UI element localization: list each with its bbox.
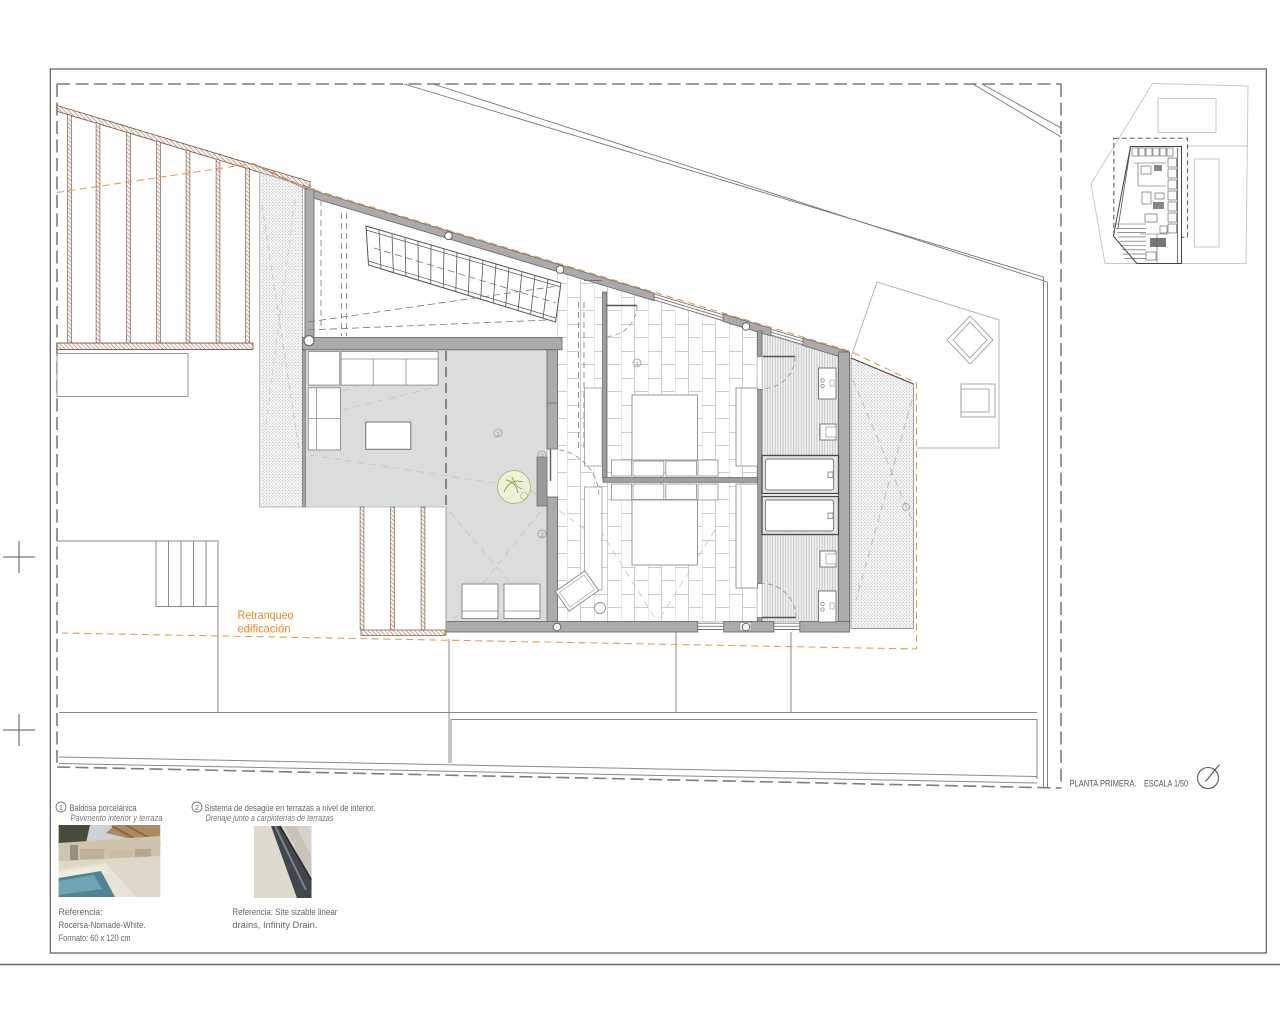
svg-text:Drenaje junto a carpinterías d: Drenaje junto a carpinterías de terrazas [206, 813, 334, 823]
svg-text:ESCALA 1/50: ESCALA 1/50 [1144, 779, 1188, 789]
svg-text:2: 2 [195, 805, 199, 812]
svg-text:Pavimento interior y terraza: Pavimento interior y terraza [71, 813, 163, 823]
svg-text:Rocersa-Nomade-White.: Rocersa-Nomade-White. [59, 920, 146, 930]
svg-text:Retranqueo: Retranqueo [238, 608, 294, 622]
svg-text:Referencia: Site sizable linea: Referencia: Site sizable linear [232, 907, 337, 917]
svg-text:Baldosa porcelánica: Baldosa porcelánica [70, 803, 137, 813]
svg-text:edificación: edificación [238, 622, 291, 636]
svg-text:2: 2 [540, 453, 544, 460]
svg-text:Sistema de desagüe en terrazas: Sistema de desagüe en terrazas a nivel d… [205, 803, 376, 813]
svg-text:1: 1 [635, 361, 639, 368]
svg-text:drains, Infinity Drain.: drains, Infinity Drain. [232, 920, 317, 930]
svg-text:2: 2 [540, 532, 544, 539]
svg-text:1: 1 [59, 805, 63, 812]
svg-text:1: 1 [496, 431, 500, 438]
svg-text:Referencia:: Referencia: [59, 907, 103, 917]
svg-text:Formato: 60 x 120 cm: Formato: 60 x 120 cm [59, 933, 131, 943]
svg-text:PLANTA PRIMERA.: PLANTA PRIMERA. [1070, 779, 1137, 789]
